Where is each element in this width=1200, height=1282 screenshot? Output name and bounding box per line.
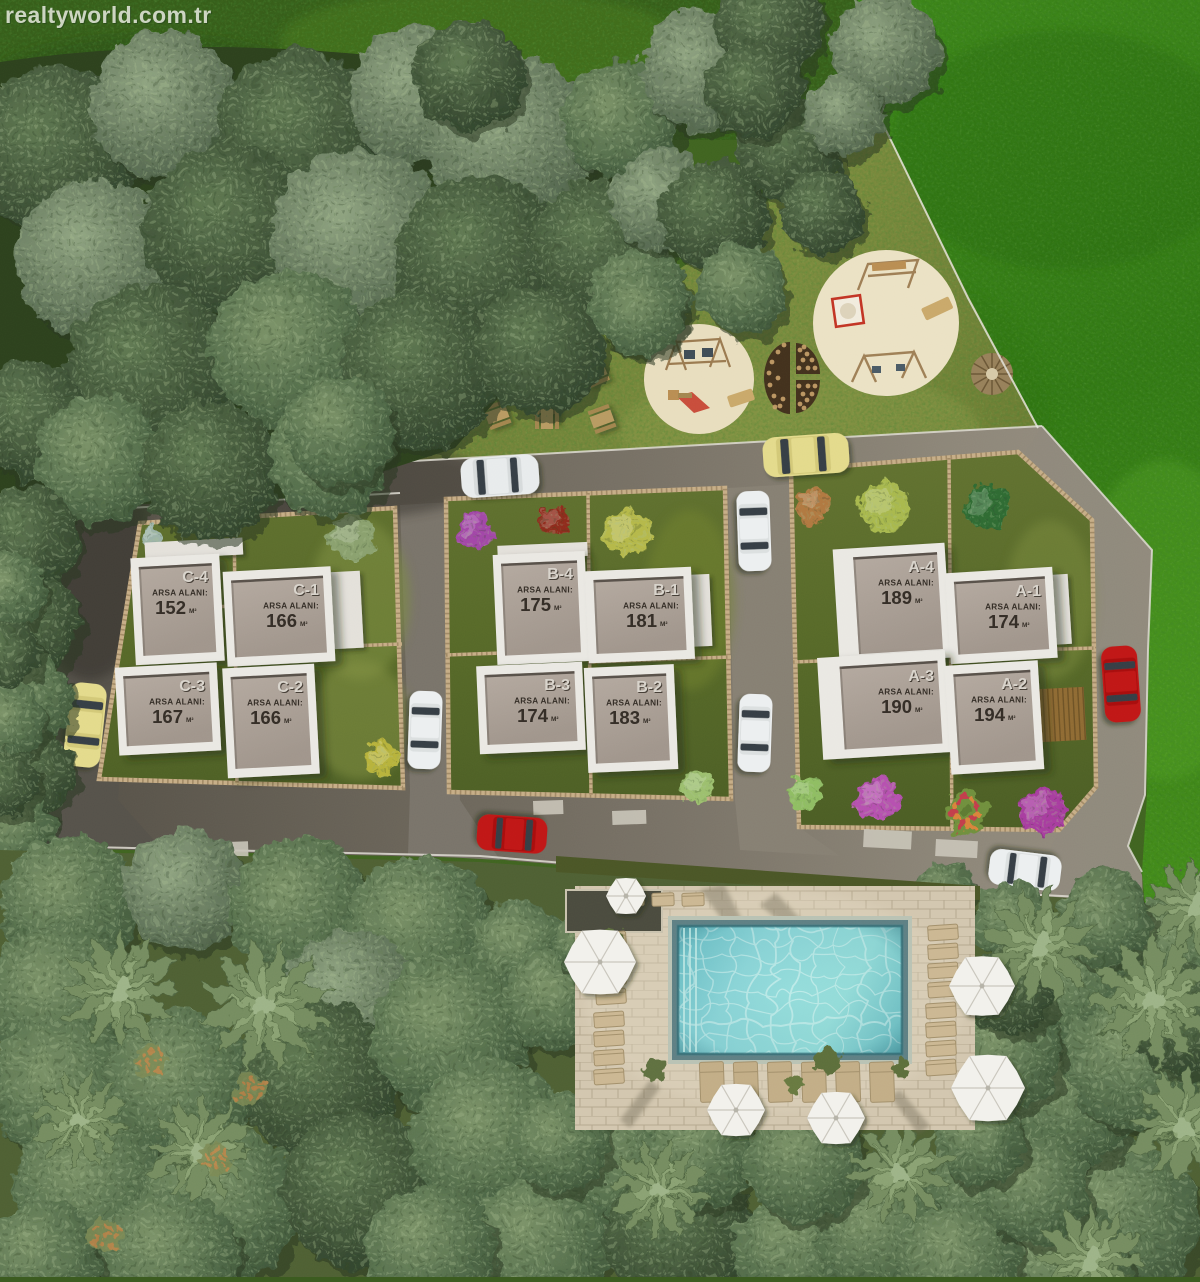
svg-text:realtyworld.com.tr: realtyworld.com.tr: [5, 2, 212, 28]
